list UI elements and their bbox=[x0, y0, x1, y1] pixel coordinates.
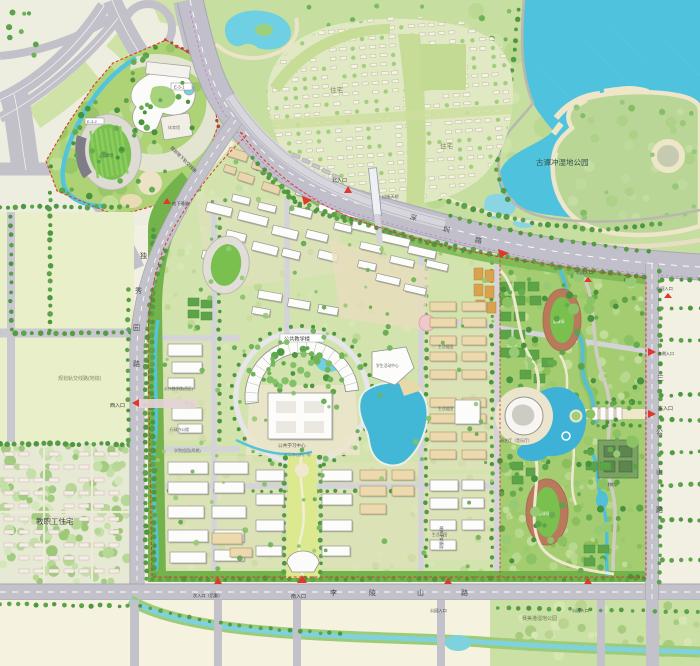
svg-text:秀: 秀 bbox=[135, 286, 142, 295]
svg-text:路: 路 bbox=[133, 359, 140, 368]
svg-text:园: 园 bbox=[133, 324, 140, 332]
svg-text:南入口: 南入口 bbox=[291, 593, 306, 600]
svg-text:东入口: 东入口 bbox=[658, 405, 673, 412]
svg-text:山: 山 bbox=[656, 467, 663, 476]
svg-text:路: 路 bbox=[461, 588, 468, 597]
svg-text:教职工住宅: 教职工住宅 bbox=[36, 516, 74, 526]
svg-text:学生活动中心: 学生活动中心 bbox=[376, 363, 399, 368]
svg-text:体育馆: 体育馆 bbox=[168, 124, 180, 130]
svg-text:E-3-1: E-3-1 bbox=[174, 85, 185, 90]
svg-text:地下通道: 地下通道 bbox=[172, 200, 190, 207]
svg-text:城市下穿通道: 城市下穿通道 bbox=[439, 526, 444, 549]
svg-text:规划轨交线路(地铁): 规划轨交线路(地铁) bbox=[58, 375, 102, 382]
svg-text:赛美港湿地公园: 赛美港湿地公园 bbox=[522, 615, 557, 622]
svg-text:住宅: 住宅 bbox=[330, 85, 344, 94]
svg-text:北入口: 北入口 bbox=[332, 177, 347, 184]
svg-text:公共教学楼(西区): 公共教学楼(西区) bbox=[164, 386, 194, 391]
svg-text:山: 山 bbox=[417, 588, 424, 597]
svg-text:李: 李 bbox=[330, 588, 337, 597]
svg-text:住宅: 住宅 bbox=[440, 141, 454, 150]
svg-text:陵: 陵 bbox=[369, 588, 376, 597]
svg-text:生活组团: 生活组团 bbox=[438, 344, 453, 349]
svg-text:路: 路 bbox=[656, 505, 663, 514]
svg-text:学院组团(两期): 学院组团(两期) bbox=[174, 447, 201, 453]
svg-text:E-3-2: E-3-2 bbox=[87, 119, 98, 124]
svg-text:学习中心前广场: 学习中心前广场 bbox=[284, 452, 311, 457]
svg-text:三: 三 bbox=[657, 374, 664, 382]
svg-text:独: 独 bbox=[140, 251, 147, 260]
svg-text:西入口: 西入口 bbox=[110, 403, 125, 409]
svg-text:公: 公 bbox=[656, 428, 663, 436]
svg-text:生活组团: 生活组团 bbox=[438, 406, 453, 411]
svg-text:次入口（后勤）: 次入口（后勤） bbox=[193, 592, 222, 599]
svg-text:行政办公楼: 行政办公楼 bbox=[170, 427, 189, 432]
svg-text:过街天桥: 过街天桥 bbox=[382, 193, 400, 200]
svg-text:演艺厅（音乐厅）: 演艺厅（音乐厅） bbox=[500, 437, 532, 443]
svg-text:东侧入口: 东侧入口 bbox=[658, 350, 674, 356]
svg-text:古谭冲湿地公园: 古谭冲湿地公园 bbox=[536, 157, 589, 167]
